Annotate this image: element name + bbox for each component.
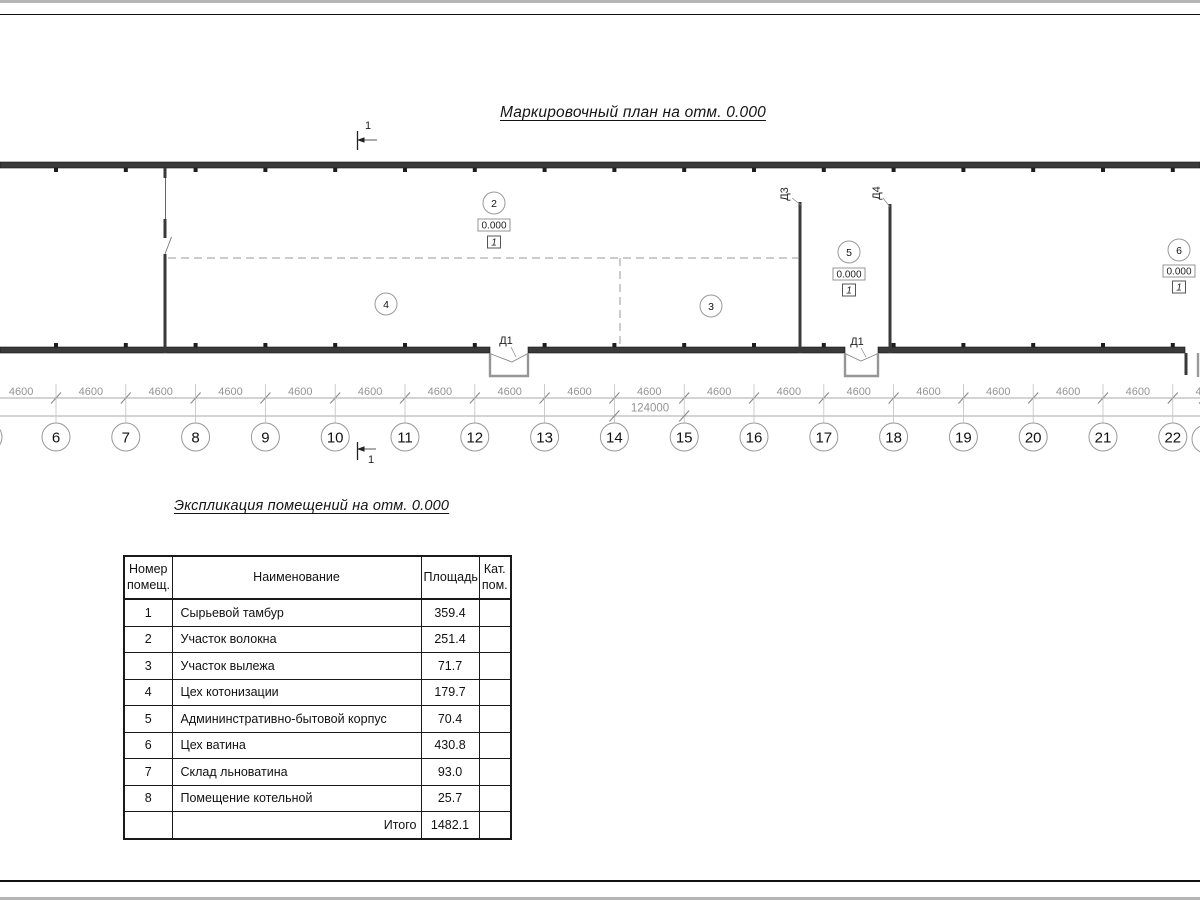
- total-dimension-label: 124000: [631, 403, 669, 415]
- column-tick-bottom: [543, 343, 547, 347]
- bottom-wall-segment: [0, 347, 490, 353]
- bay-dimension-label: 4600: [79, 386, 103, 398]
- grid-axis-number: 11: [397, 429, 413, 446]
- column-tick-top: [752, 168, 756, 172]
- column-tick-top: [892, 168, 896, 172]
- bay-dimension-label: 4600: [1126, 386, 1150, 398]
- room-name-cell: Участок вылежа: [172, 653, 421, 680]
- column-tick-bottom: [612, 343, 616, 347]
- column-tick-top: [612, 168, 616, 172]
- bay-dimension-label: 4600: [358, 386, 382, 398]
- grid-axis-number: 20: [1025, 429, 1042, 446]
- door-label-d1: Д1: [850, 336, 864, 348]
- category-cell: [479, 653, 511, 680]
- schedule-row: 6Цех ватина430.8: [124, 732, 511, 759]
- category-cell: [479, 706, 511, 733]
- bay-dimension-label: 4600: [288, 386, 312, 398]
- room-name-cell: Цех котонизации: [172, 679, 421, 706]
- door-leaf: [846, 354, 877, 361]
- elevation-value: 0.000: [481, 221, 506, 232]
- schedule-row: 7Склад льноватина93.0: [124, 759, 511, 786]
- bay-dimension-label: 4600: [986, 386, 1010, 398]
- row-number-cell: 3: [124, 653, 172, 680]
- schedule-row: 3Участок вылежа71.7: [124, 653, 511, 680]
- schedule-header-cell: Площадь: [421, 556, 479, 599]
- column-tick-top: [54, 168, 58, 172]
- grid-axis-number: 14: [606, 429, 623, 446]
- grid-axis-number: 19: [955, 429, 972, 446]
- schedule-row: 5Админинстративно-бытовой корпус70.4: [124, 706, 511, 733]
- bay-dimension-label: 4600: [637, 386, 661, 398]
- bay-dimension-label: 4600: [567, 386, 591, 398]
- bottom-wall-segment: [878, 347, 1185, 353]
- area-cell: 71.7: [421, 653, 479, 680]
- room-name-cell: Админинстративно-бытовой корпус: [172, 706, 421, 733]
- schedule-total-row: Итого1482.1: [124, 812, 511, 839]
- grid-axis-number: 17: [815, 429, 832, 446]
- wall-return-right: [1185, 353, 1188, 375]
- schedule-header-cell: Номер помещ.: [124, 556, 172, 599]
- column-tick-bottom: [752, 343, 756, 347]
- grid-axis-number: 16: [746, 429, 763, 446]
- area-cell: 70.4: [421, 706, 479, 733]
- room-name-cell: Сырьевой тамбур: [172, 599, 421, 626]
- grid-axis-number: 13: [536, 429, 553, 446]
- room-number: 3: [708, 301, 714, 313]
- door-label-leader: [861, 348, 866, 357]
- column-tick-bottom: [1031, 343, 1035, 347]
- schedule-row: 1Сырьевой тамбур359.4: [124, 599, 511, 626]
- grid-axis-circle-partial: [0, 423, 2, 451]
- bottom-wall-segment: [528, 347, 845, 353]
- room-schedule-table: Номер помещ.НаименованиеПлощадьКат. пом.…: [123, 555, 512, 840]
- area-cell: 359.4: [421, 599, 479, 626]
- room-number: 2: [491, 198, 497, 210]
- interior-wall: [164, 254, 167, 353]
- column-tick-top: [961, 168, 965, 172]
- bay-dimension-label: 4600: [707, 386, 731, 398]
- row-number-cell: 8: [124, 785, 172, 812]
- schedule-row: 4Цех котонизации179.7: [124, 679, 511, 706]
- column-tick-bottom: [822, 343, 826, 347]
- row-number-cell: 2: [124, 626, 172, 653]
- column-tick-top: [194, 168, 198, 172]
- section-mark-label: 1: [368, 454, 374, 466]
- category-cell: [479, 785, 511, 812]
- bay-dimension-label: 4600: [497, 386, 521, 398]
- sheet-frame-bottom-line: [0, 880, 1200, 882]
- section-mark-label: 1: [365, 120, 371, 132]
- elevation-value: 0.000: [1166, 267, 1191, 278]
- column-tick-top: [1031, 168, 1035, 172]
- room-name-cell: Помещение котельной: [172, 785, 421, 812]
- grid-axis-number: 22: [1164, 429, 1181, 446]
- room-number: 4: [383, 299, 389, 311]
- schedule-row: 8Помещение котельной25.7: [124, 785, 511, 812]
- room-name-cell: Участок волокна: [172, 626, 421, 653]
- schedule-row: 2Участок волокна251.4: [124, 626, 511, 653]
- row-number-cell: 5: [124, 706, 172, 733]
- door-label-leader: [511, 347, 516, 357]
- column-tick-top: [682, 168, 686, 172]
- schedule-header-cell: Наименование: [172, 556, 421, 599]
- door-label-leader: [883, 198, 890, 207]
- column-tick-top: [403, 168, 407, 172]
- column-tick-bottom: [54, 343, 58, 347]
- grid-axis-number: 9: [261, 429, 269, 446]
- room-name-cell: Склад льноватина: [172, 759, 421, 786]
- grid-axis-number: 6: [52, 429, 60, 446]
- column-tick-bottom: [263, 343, 267, 347]
- bay-dimension-label: 4600: [846, 386, 870, 398]
- category-cell: [479, 626, 511, 653]
- row-number-cell: 1: [124, 599, 172, 626]
- column-tick-top: [263, 168, 267, 172]
- category-value: 1: [491, 238, 497, 249]
- interior-wall-stub: [164, 168, 167, 178]
- category-cell: [479, 599, 511, 626]
- interior-wall-segment: [164, 219, 167, 238]
- schedule-title: Экспликация помещений на отм. 0.000: [174, 498, 449, 514]
- category-value: 1: [1176, 283, 1182, 294]
- door-label-d4: Д4: [871, 186, 883, 200]
- grid-axis-number: 15: [676, 429, 693, 446]
- bay-dimension-label: 4600: [777, 386, 801, 398]
- room-name-cell: Цех ватина: [172, 732, 421, 759]
- category-cell: [479, 812, 511, 839]
- door-swing-line: [165, 237, 172, 254]
- interior-wall-d4: [889, 204, 892, 353]
- drawing-sheet: Маркировочный план на отм. 0.000 Д1Д1Д3Д…: [0, 0, 1200, 900]
- interior-wall-d3: [799, 202, 802, 353]
- column-tick-bottom: [473, 343, 477, 347]
- row-number-cell: 6: [124, 732, 172, 759]
- grid-axis-number: 7: [122, 429, 130, 446]
- column-tick-top: [822, 168, 826, 172]
- area-cell: 93.0: [421, 759, 479, 786]
- bay-dimension-label: 4600: [9, 386, 33, 398]
- area-cell: 251.4: [421, 626, 479, 653]
- column-tick-bottom: [403, 343, 407, 347]
- category-value: 1: [846, 286, 852, 297]
- column-tick-bottom: [682, 343, 686, 347]
- category-cell: [479, 679, 511, 706]
- bay-dimension-label: 4600: [916, 386, 940, 398]
- bay-dimension-label: 4600: [1195, 386, 1200, 398]
- top-wall: [0, 162, 1200, 168]
- column-tick-bottom: [194, 343, 198, 347]
- row-number-cell: 4: [124, 679, 172, 706]
- column-tick-bottom: [892, 343, 896, 347]
- total-label-cell: Итого: [172, 812, 421, 839]
- vestibule-outline: [845, 353, 878, 376]
- column-tick-bottom: [961, 343, 965, 347]
- column-tick-top: [543, 168, 547, 172]
- column-tick-top: [124, 168, 128, 172]
- floor-plan: Д1Д1Д3Д41120.00014350.000160.00014600460…: [0, 0, 1200, 470]
- grid-axis-number: 12: [466, 429, 483, 446]
- door-label-d3: Д3: [779, 187, 791, 201]
- column-tick-top: [1171, 168, 1175, 172]
- elevation-value: 0.000: [836, 270, 861, 281]
- column-tick-bottom: [333, 343, 337, 347]
- area-cell: 179.7: [421, 679, 479, 706]
- door-label-d1: Д1: [499, 335, 513, 347]
- area-cell: 430.8: [421, 732, 479, 759]
- row-number-cell: 7: [124, 759, 172, 786]
- column-tick-bottom: [1171, 343, 1175, 347]
- grid-axis-number: 18: [885, 429, 902, 446]
- bay-dimension-label: 4600: [148, 386, 172, 398]
- column-tick-top: [1101, 168, 1105, 172]
- room-number: 6: [1176, 245, 1182, 257]
- row-number-cell: [124, 812, 172, 839]
- door-leaf: [491, 354, 527, 362]
- column-tick-top: [333, 168, 337, 172]
- category-cell: [479, 732, 511, 759]
- area-cell: 25.7: [421, 785, 479, 812]
- category-cell: [479, 759, 511, 786]
- column-tick-top: [473, 168, 477, 172]
- bay-dimension-label: 4600: [1056, 386, 1080, 398]
- grid-axis-number: 10: [327, 429, 344, 446]
- column-tick-bottom: [1101, 343, 1105, 347]
- grid-axis-number: 21: [1095, 429, 1112, 446]
- grid-axis-number: 8: [191, 429, 199, 446]
- total-area-cell: 1482.1: [421, 812, 479, 839]
- grid-axis-circle-partial: [1192, 425, 1200, 453]
- column-tick-bottom: [124, 343, 128, 347]
- room-number: 5: [846, 247, 852, 259]
- bay-dimension-label: 4600: [428, 386, 452, 398]
- bay-dimension-label: 4600: [218, 386, 242, 398]
- schedule-header-cell: Кат. пом.: [479, 556, 511, 599]
